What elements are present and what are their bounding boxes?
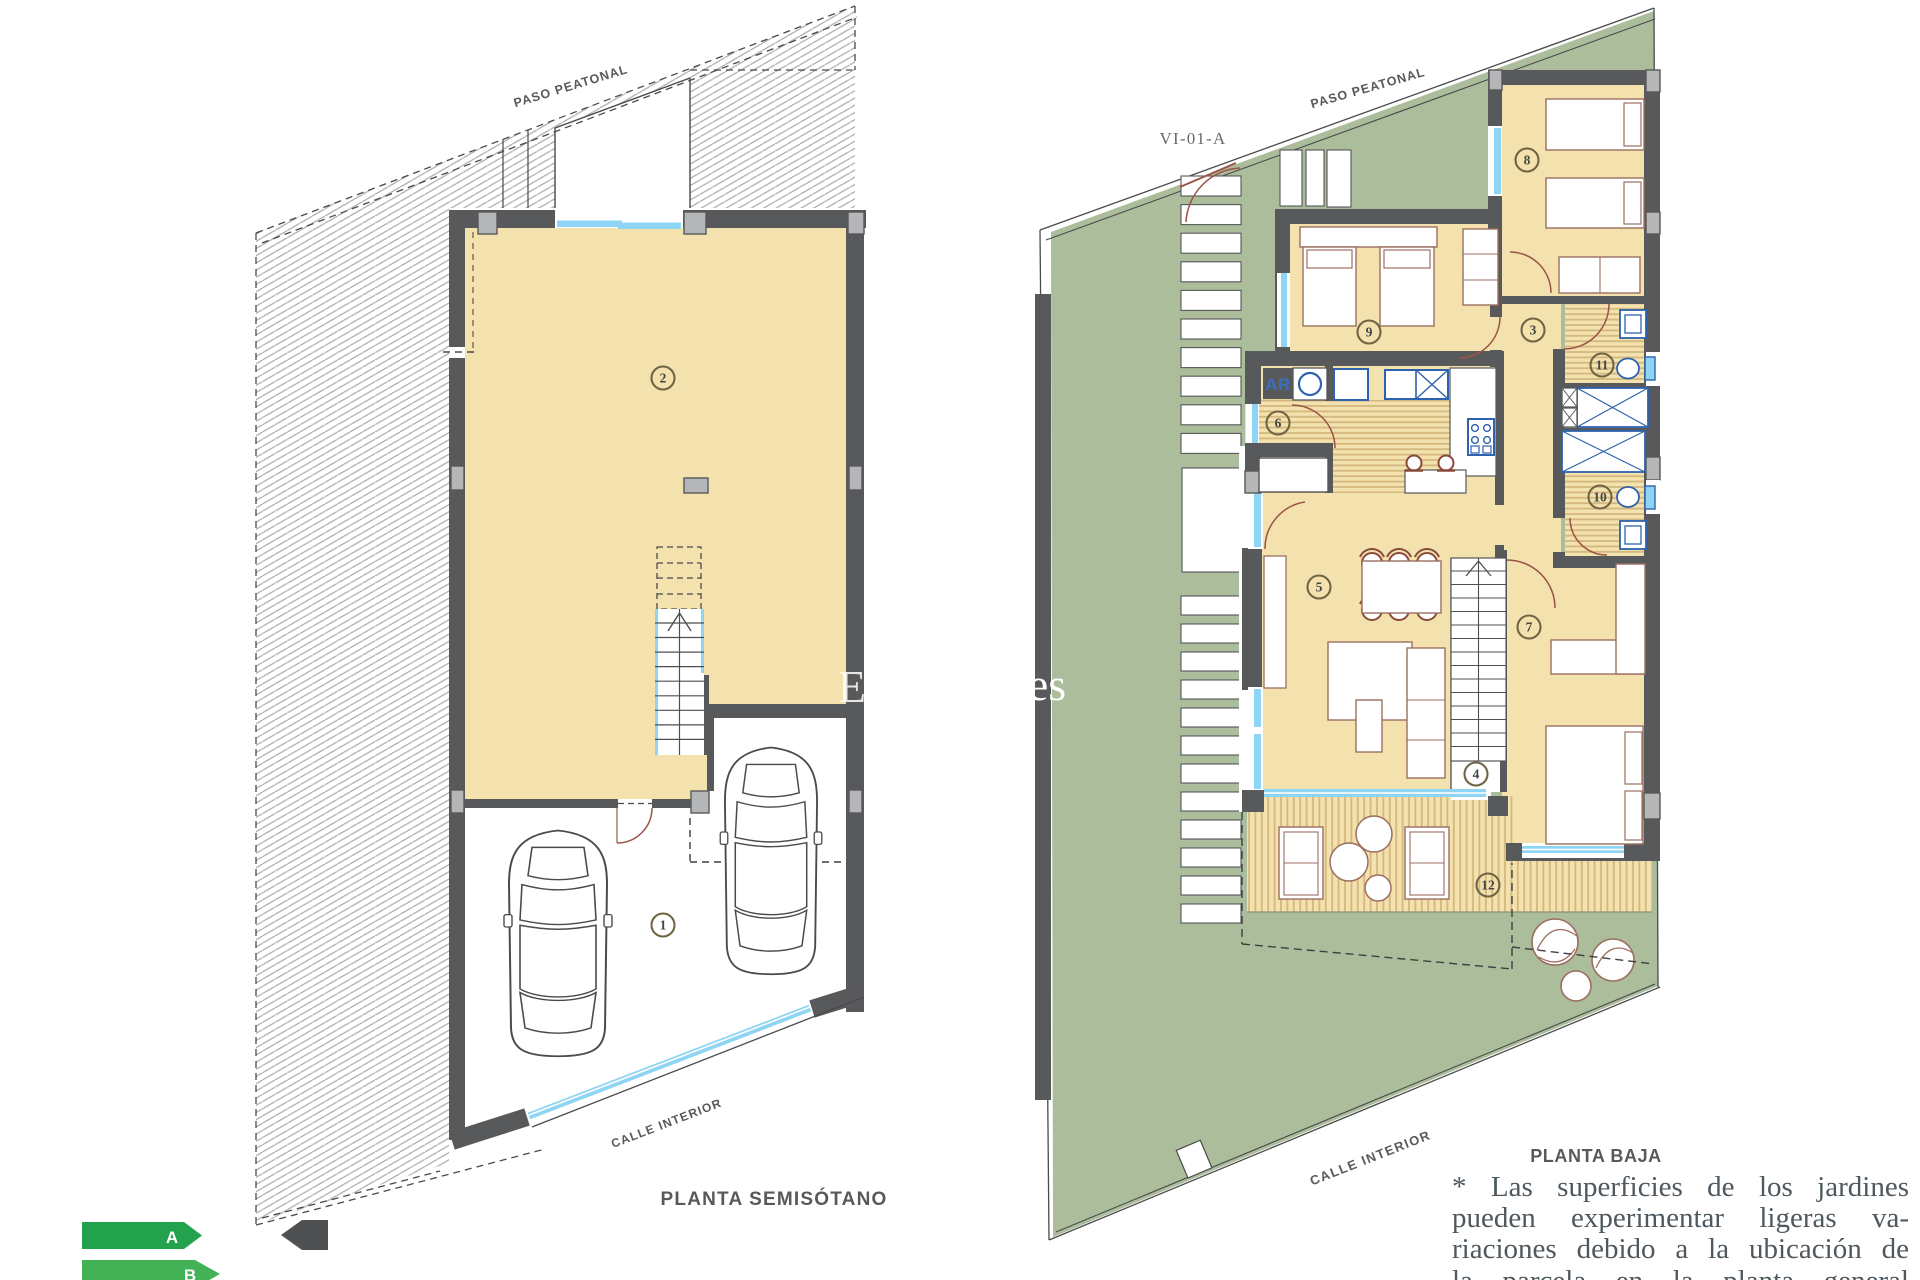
svg-text:B: B — [184, 1266, 196, 1280]
svg-text:1: 1 — [660, 918, 667, 933]
svg-text:7: 7 — [1526, 620, 1533, 635]
svg-text:11: 11 — [1596, 358, 1609, 373]
svg-text:3: 3 — [1530, 323, 1537, 338]
svg-text:5: 5 — [1316, 580, 1323, 595]
svg-text:9: 9 — [1366, 325, 1373, 340]
svg-text:es: es — [1028, 659, 1066, 710]
svg-text:VI-01-A: VI-01-A — [1160, 129, 1227, 148]
svg-text:12: 12 — [1481, 878, 1495, 893]
svg-text:AR: AR — [1265, 375, 1291, 394]
svg-text:PLANTA BAJA: PLANTA BAJA — [1530, 1146, 1662, 1166]
svg-text:E: E — [838, 661, 866, 712]
svg-text:A: A — [166, 1228, 178, 1247]
svg-text:10: 10 — [1593, 490, 1607, 505]
svg-text:8: 8 — [1524, 153, 1531, 168]
svg-text:PLANTA SEMISÓTANO: PLANTA SEMISÓTANO — [661, 1188, 888, 1210]
svg-text:4: 4 — [1473, 767, 1480, 782]
svg-text:2: 2 — [660, 371, 667, 386]
svg-text:6: 6 — [1275, 416, 1282, 431]
